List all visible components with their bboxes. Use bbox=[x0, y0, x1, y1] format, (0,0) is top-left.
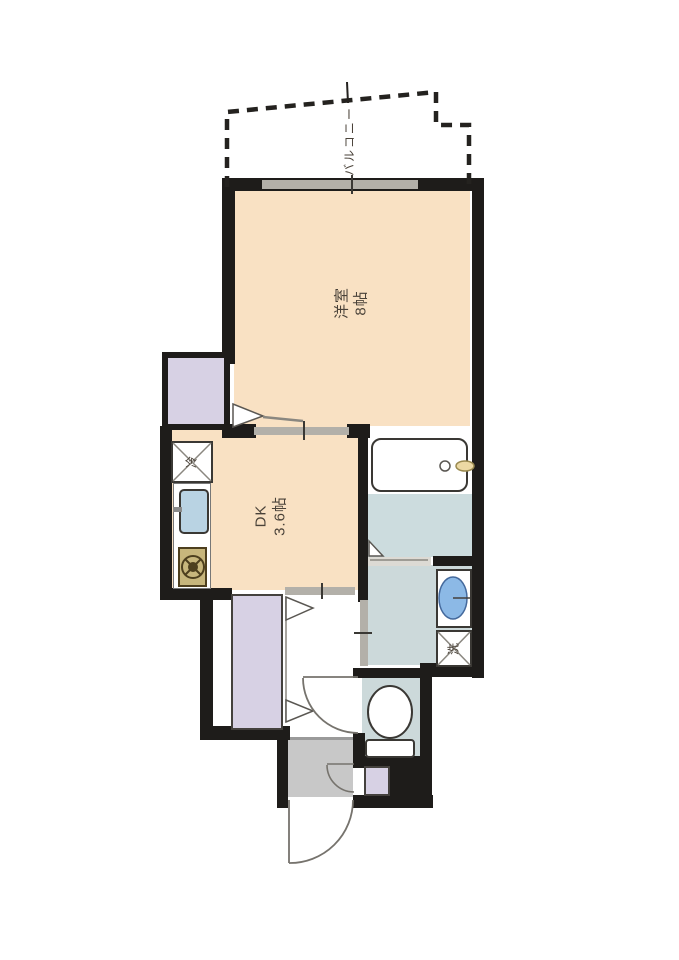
dk-size: 3.6帖 bbox=[271, 496, 290, 536]
sink-faucet bbox=[173, 507, 182, 512]
wall-genkan-left bbox=[277, 738, 288, 808]
bath-floor bbox=[368, 494, 472, 557]
entry-door-swing bbox=[289, 800, 353, 863]
washing-machine-label: 洗 bbox=[447, 643, 462, 655]
genkan-floor bbox=[288, 740, 353, 797]
window-tick bbox=[351, 175, 353, 194]
bathtub bbox=[371, 438, 468, 492]
slider-dk-hall bbox=[285, 587, 355, 595]
bath-door-band bbox=[368, 557, 431, 566]
slider-dk-hall-tick bbox=[321, 583, 323, 599]
shoe-cabinet bbox=[364, 766, 390, 796]
wall-center-vertical bbox=[358, 426, 368, 568]
wall-dk-bottom bbox=[160, 588, 232, 600]
balcony-label: バルコニー bbox=[343, 106, 358, 176]
gas-stove bbox=[178, 547, 207, 587]
genkan-step-line bbox=[288, 737, 353, 740]
washbasin-counter bbox=[436, 569, 472, 628]
closet bbox=[168, 358, 224, 424]
dk-name: DK bbox=[252, 496, 271, 536]
hall-closet bbox=[231, 594, 283, 730]
main-room-size: 8帖 bbox=[352, 287, 371, 319]
wall-main-left bbox=[222, 178, 235, 364]
wall-toilet-top bbox=[353, 668, 432, 678]
slider-main-dk-tick bbox=[303, 421, 305, 440]
kitchen-sink bbox=[179, 489, 209, 534]
wall-below-dk bbox=[200, 592, 213, 738]
dk-label: DK 3.6帖 bbox=[252, 496, 290, 536]
window bbox=[262, 180, 418, 189]
wall-bath-washroom bbox=[433, 556, 484, 566]
floor-plan: 洋室 8帖 DK 3.6帖 バルコニー 冷 洗 bbox=[0, 0, 679, 960]
hall-closet-door-marks bbox=[286, 597, 313, 722]
wall-washroom-left-top bbox=[358, 560, 368, 602]
main-room-label: 洋室 8帖 bbox=[333, 287, 371, 319]
washroom-door-tick bbox=[354, 632, 372, 634]
wall-right bbox=[472, 178, 484, 678]
main-room-name: 洋室 bbox=[333, 287, 352, 319]
toilet-floor bbox=[362, 678, 420, 758]
slider-main-dk bbox=[254, 427, 349, 435]
refrigerator-label: 冷 bbox=[185, 456, 200, 468]
toilet-door-swing bbox=[303, 677, 358, 733]
